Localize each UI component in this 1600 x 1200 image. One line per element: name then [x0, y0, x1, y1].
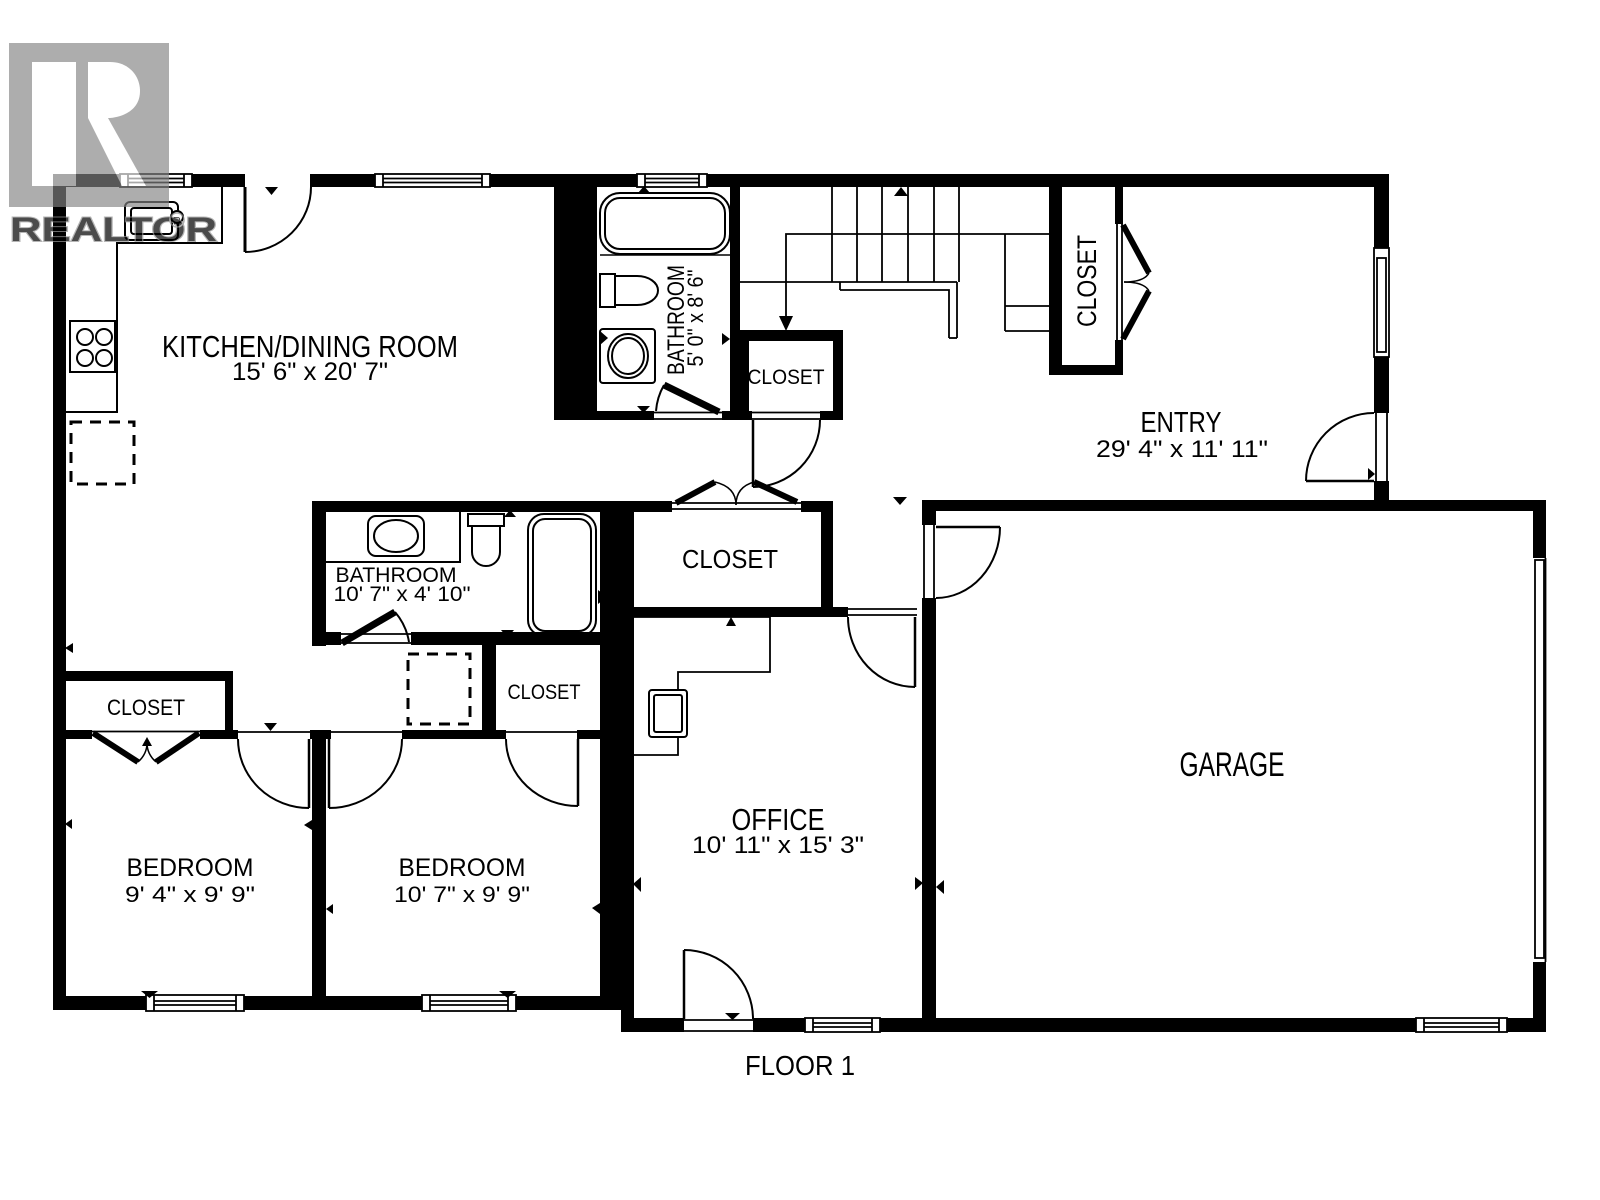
svg-text:GARAGE: GARAGE	[1180, 746, 1285, 784]
svg-text:10' 7" x 4' 10": 10' 7" x 4' 10"	[334, 583, 471, 606]
svg-text:15' 6" x 20' 7": 15' 6" x 20' 7"	[232, 358, 388, 386]
svg-text:CLOSET: CLOSET	[1072, 235, 1102, 327]
svg-text:10' 7" x 9' 9": 10' 7" x 9' 9"	[394, 882, 530, 907]
svg-text:9' 4" x 9' 9": 9' 4" x 9' 9"	[125, 882, 255, 907]
svg-text:BEDROOM: BEDROOM	[399, 854, 526, 882]
svg-text:CLOSET: CLOSET	[107, 695, 185, 720]
svg-text:CLOSET: CLOSET	[508, 681, 581, 704]
svg-text:29' 4" x 11' 11": 29' 4" x 11' 11"	[1096, 436, 1268, 463]
svg-text:R: R	[173, 216, 181, 228]
svg-text:CLOSET: CLOSET	[682, 544, 778, 574]
svg-text:REALTOR: REALTOR	[10, 211, 217, 249]
svg-text:5' 0" x 8' 6": 5' 0" x 8' 6"	[683, 270, 708, 367]
svg-text:CLOSET: CLOSET	[748, 366, 825, 389]
svg-text:FLOOR 1: FLOOR 1	[745, 1050, 855, 1081]
svg-text:ENTRY: ENTRY	[1141, 407, 1222, 439]
svg-text:BEDROOM: BEDROOM	[127, 854, 254, 882]
svg-text:10' 11" x 15' 3": 10' 11" x 15' 3"	[692, 832, 864, 859]
